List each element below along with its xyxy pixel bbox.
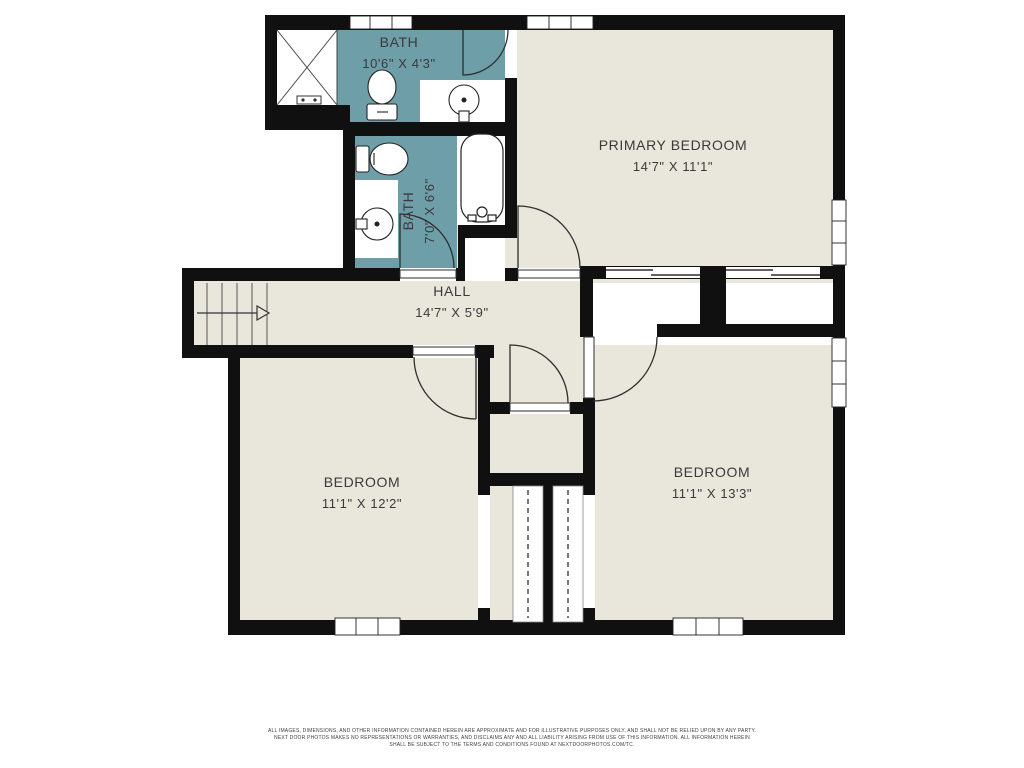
room-label-bath-top: BATH 10'6" X 4'3" [362, 31, 435, 75]
floor-plan-drawing [0, 0, 1024, 768]
room-label-bath-lower: BATH 7'0" X 6'6" [397, 178, 441, 244]
door-leaf-primary [518, 270, 580, 278]
doorway-bedroom-right [593, 324, 657, 337]
disclaimer-line: ALL IMAGES, DIMENSIONS, AND OTHER INFORM… [0, 728, 1024, 735]
wall-closet-row-pillar [700, 279, 726, 324]
wall-hall-top-c [505, 268, 518, 281]
door-leaf-bedroom-right [584, 337, 594, 398]
linen-closet-floor [465, 238, 505, 281]
room-dimensions: 14'7" X 11'1" [599, 156, 748, 178]
toilet-icon [356, 143, 408, 175]
room-name: PRIMARY BEDROOM [599, 134, 748, 156]
door-leaf-bath-lower [400, 270, 456, 278]
wall-bath-divider [343, 122, 517, 136]
wall-bedroom-left-outer [228, 345, 240, 635]
wall-vestibule-right-stub [583, 608, 595, 635]
room-dimensions: 11'1" X 13'3" [672, 483, 752, 505]
wall-bath-lower-left [343, 122, 355, 281]
room-name: BATH [362, 31, 435, 53]
disclaimer: ALL IMAGES, DIMENSIONS, AND OTHER INFORM… [0, 728, 1024, 750]
doorway-bath-top [505, 30, 517, 78]
room-name: HALL [415, 280, 488, 302]
exterior-notch [194, 130, 343, 268]
room-label-primary-bedroom: PRIMARY BEDROOM 14'7" X 11'1" [599, 134, 748, 178]
closet-rod-icon [513, 486, 543, 622]
floor-plan-page: BATH 10'6" X 4'3" PRIMARY BEDROOM 14'7" … [0, 0, 1024, 768]
wall-closet-block-top [483, 473, 593, 486]
room-label-bedroom-right: BEDROOM 11'1" X 13'3" [672, 461, 752, 505]
room-label-hall: HALL 14'7" X 5'9" [415, 280, 488, 324]
wall-stair-left [182, 268, 194, 357]
window-icon [335, 618, 400, 635]
wall-primary-left [505, 78, 517, 238]
toilet-icon [367, 70, 397, 120]
window-icon [350, 16, 412, 29]
disclaimer-line: SHALL BE SUBJECT TO THE TERMS AND CONDIT… [0, 742, 1024, 749]
closet-opening-left [478, 495, 490, 608]
closet-opening-b [726, 267, 820, 278]
door-leaf-vestibule [510, 403, 570, 411]
wall-vestibule-top-b [570, 402, 595, 414]
wall-vestibule-top-a [483, 402, 510, 414]
wall-vestibule-left [478, 345, 490, 495]
closet-opening-a [606, 267, 700, 278]
wall-closet-row-bottom-a [582, 324, 593, 337]
wall-vestibule-left-stub [478, 608, 490, 635]
bathtub-icon [461, 134, 503, 222]
room-label-bedroom-left: BEDROOM 11'1" X 12'2" [322, 471, 402, 515]
room-dimensions: 11'1" X 12'2" [322, 493, 402, 515]
wall-closet-row-bottom-b [657, 324, 845, 337]
window-icon [673, 618, 743, 635]
room-dimensions: 10'6" X 4'3" [362, 53, 435, 75]
window-icon [832, 200, 846, 265]
room-dimensions: 14'7" X 5'9" [415, 302, 488, 324]
wall-hall-top-a [182, 268, 400, 281]
wall-tub-alcove-bottom [458, 225, 517, 238]
wall-closet-block-middle [543, 486, 553, 635]
window-icon [527, 16, 593, 29]
room-name: BEDROOM [672, 461, 752, 483]
closet-rod-icon [553, 486, 583, 622]
wall-hall-bottom-a [182, 345, 415, 358]
disclaimer-line: NEXT DOOR PHOTOS MAKES NO REPRESENTATION… [0, 735, 1024, 742]
room-name: BATH [397, 178, 419, 244]
closet-opening-right [583, 495, 595, 608]
window-icon [832, 338, 846, 407]
wall-shower-bottom [265, 105, 350, 130]
room-name: BEDROOM [322, 471, 402, 493]
wall-right [833, 15, 845, 635]
door-leaf-bedroom-left [413, 347, 475, 355]
room-dimensions: 7'0" X 6'6" [419, 178, 441, 244]
